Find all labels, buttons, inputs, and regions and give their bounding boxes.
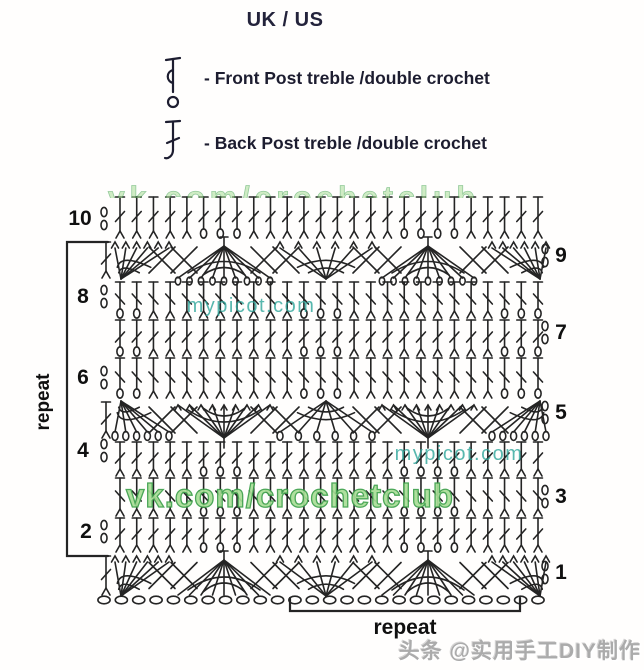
post-stitch-row	[116, 358, 543, 398]
post-stitch-row	[116, 518, 543, 552]
row-number-left: 2	[80, 520, 107, 543]
watermark-top-clipped: vk.com/crochetclub	[108, 181, 480, 214]
svg-text:9: 9	[555, 244, 567, 267]
turning-chains	[101, 520, 107, 542]
svg-text:4: 4	[77, 439, 89, 462]
post-stitch-row	[116, 197, 543, 238]
watermark-mypicot-upper: mypicot.com	[187, 295, 316, 317]
repeat-label-side: repeat	[33, 373, 54, 431]
fan-row	[102, 551, 550, 596]
post-stitch-row	[116, 320, 543, 356]
fan-row	[102, 237, 550, 285]
row-number-right: 3	[542, 485, 567, 508]
fan-row	[102, 401, 550, 448]
row-number-left: 4	[77, 439, 107, 462]
svg-text:8: 8	[77, 285, 89, 308]
crochet-chart-svg: 10864297531repeatrepeatvk.com/crochetclu…	[0, 0, 644, 670]
turning-chains	[101, 285, 107, 307]
post-stitch-row	[116, 282, 543, 318]
turning-chains	[101, 439, 107, 461]
turning-chains	[101, 366, 107, 388]
svg-text:10: 10	[68, 207, 91, 230]
watermark-mypicot-lower: mypicot.com	[395, 443, 524, 465]
crochet-pattern-page: UK / US - Front Post treble /double croc…	[0, 0, 644, 670]
foundation-chain-row	[98, 596, 544, 604]
turning-chains	[101, 207, 107, 229]
svg-text:1: 1	[555, 561, 567, 584]
row-number-left: 6	[77, 366, 107, 389]
svg-text:7: 7	[555, 321, 567, 344]
byline-watermark: 头条 @实用手工DIY制作	[399, 635, 641, 665]
watermark-vk-club: vk.com/crochetclub	[126, 477, 454, 514]
row-number-left: 10	[68, 207, 107, 230]
svg-text:5: 5	[555, 401, 567, 424]
svg-text:2: 2	[80, 520, 92, 543]
row-number-left: 8	[77, 285, 107, 308]
svg-text:6: 6	[77, 366, 89, 389]
row-number-right: 5	[542, 401, 567, 424]
row-number-right: 7	[542, 321, 567, 344]
turning-chains	[542, 485, 548, 507]
svg-text:3: 3	[555, 485, 567, 508]
